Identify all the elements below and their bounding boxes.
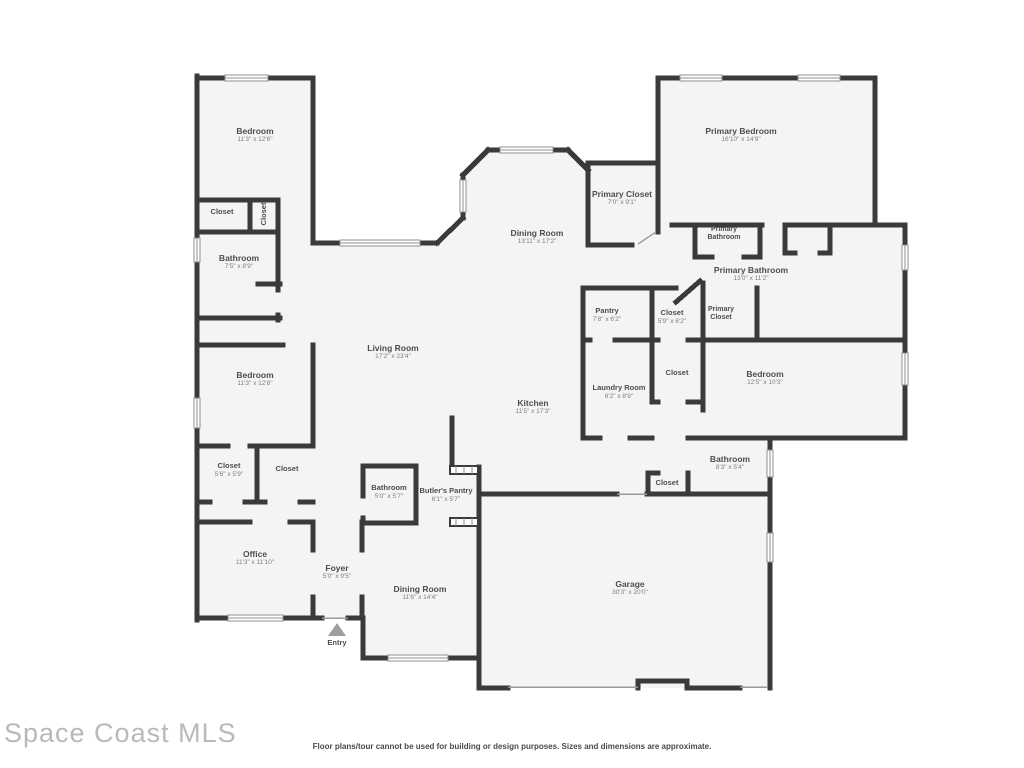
room-dims: 6'1" x 5'7"	[419, 496, 472, 504]
room-label-laundry: Laundry Room 6'2" x 8'9"	[593, 383, 646, 401]
room-dims: 13'0" x 11'2"	[714, 275, 788, 283]
floor-plan-page: Bedroom 11'3" x 12'6" Closet Closet Bath…	[0, 0, 1024, 768]
room-label-office: Office 11'3" x 11'10"	[236, 549, 274, 567]
room-name: Closet	[656, 478, 679, 488]
room-label-living-room: Living Room 17'2" x 23'4"	[367, 343, 418, 361]
room-name: Pantry	[593, 306, 621, 316]
room-label-butlers-pantry: Butler's Pantry 6'1" x 5'7"	[419, 486, 472, 504]
room-name: Closet	[666, 368, 689, 378]
room-label-primary-closet-small: Primary Closet	[698, 306, 744, 322]
room-name: Primary Bathroom	[701, 226, 747, 242]
room-label-bedroom-right: Bedroom 12'5" x 10'3"	[746, 369, 783, 387]
room-dims: 11'3" x 12'8"	[236, 380, 273, 388]
room-name: Garage	[612, 579, 648, 589]
room-name: Closet	[211, 207, 234, 217]
room-name: Kitchen	[515, 398, 550, 408]
room-label-closet-1: Closet 5'6" x 5'9"	[215, 461, 243, 479]
room-dims: 5'6" x 5'9"	[215, 471, 243, 479]
room-name: Closet	[215, 461, 243, 471]
room-name: Bathroom	[371, 483, 406, 493]
room-name: Bathroom	[710, 454, 750, 464]
room-dims: 17'2" x 23'4"	[367, 353, 418, 361]
room-label-dining-room-bottom: Dining Room 11'6" x 14'4"	[394, 584, 447, 602]
room-label-closet-b: Closet	[259, 203, 269, 226]
room-label-closet-garage: Closet	[656, 478, 679, 488]
room-label-bathroom-right: Bathroom 8'3" x 5'4"	[710, 454, 750, 472]
room-dims: 7'8" x 6'2"	[593, 316, 621, 324]
room-name: Entry	[327, 638, 346, 647]
room-name: Bedroom	[746, 369, 783, 379]
entry-arrow-icon	[328, 623, 346, 636]
room-name: Primary Bathroom	[714, 265, 788, 275]
room-label-bathroom-top-left: Bathroom 7'5" x 8'9"	[219, 253, 259, 271]
room-name: Bedroom	[236, 370, 273, 380]
floor-fill	[197, 78, 905, 688]
room-label-primary-bathroom: Primary Bathroom 13'0" x 11'2"	[714, 265, 788, 283]
room-name: Primary Closet	[592, 189, 652, 199]
room-dims: 16'10" x 14'9"	[705, 136, 776, 144]
room-label-primary-bathroom-wc: Primary Bathroom	[701, 226, 747, 242]
room-label-pantry: Pantry 7'8" x 6'2"	[593, 306, 621, 324]
room-label-primary-bedroom: Primary Bedroom 16'10" x 14'9"	[705, 126, 776, 144]
room-dims: 11'3" x 12'6"	[236, 136, 273, 144]
room-name: Primary Closet	[698, 306, 744, 322]
room-dims: 11'5" x 17'3"	[515, 408, 550, 416]
room-dims: 12'5" x 10'3"	[746, 379, 783, 387]
room-name: Living Room	[367, 343, 418, 353]
room-dims: 7'0" x 9'1"	[592, 199, 652, 207]
room-label-closet-a: Closet	[211, 207, 234, 217]
room-dims: 8'3" x 5'4"	[710, 464, 750, 472]
room-name: Bathroom	[219, 253, 259, 263]
room-dims: 11'3" x 11'10"	[236, 559, 274, 567]
room-label-primary-closet-top: Primary Closet 7'0" x 9'1"	[592, 189, 652, 207]
room-dims: 5'9" x 6'2"	[658, 318, 686, 326]
room-name: Laundry Room	[593, 383, 646, 393]
room-name: Butler's Pantry	[419, 486, 472, 496]
room-name: Primary Bedroom	[705, 126, 776, 136]
room-name: Bedroom	[236, 126, 273, 136]
room-name: Closet	[259, 203, 269, 226]
room-dims: 6'2" x 8'9"	[593, 393, 646, 401]
room-label-closet-2: Closet	[276, 464, 299, 474]
room-dims: 5'0" x 9'5"	[323, 573, 351, 581]
room-label-entry: Entry	[327, 638, 346, 647]
room-label-bedroom-mid-left: Bedroom 11'3" x 12'8"	[236, 370, 273, 388]
room-label-dining-room-top: Dining Room 13'11" x 17'2"	[511, 228, 564, 246]
disclaimer-text: Floor plans/tour cannot be used for buil…	[0, 742, 1024, 751]
room-name: Office	[236, 549, 274, 559]
room-dims: 5'0" x 5'7"	[371, 493, 406, 501]
room-label-garage: Garage 30'3" x 20'0"	[612, 579, 648, 597]
room-dims: 13'11" x 17'2"	[511, 238, 564, 246]
room-name: Closet	[658, 308, 686, 318]
room-label-bedroom-top-left: Bedroom 11'3" x 12'6"	[236, 126, 273, 144]
room-label-foyer: Foyer 5'0" x 9'5"	[323, 563, 351, 581]
room-dims: 7'5" x 8'9"	[219, 263, 259, 271]
room-name: Dining Room	[394, 584, 447, 594]
room-label-bathroom-small: Bathroom 5'0" x 5'7"	[371, 483, 406, 501]
room-name: Dining Room	[511, 228, 564, 238]
room-name: Foyer	[323, 563, 351, 573]
room-dims: 11'6" x 14'4"	[394, 594, 447, 602]
room-dims: 30'3" x 20'0"	[612, 589, 648, 597]
room-label-kitchen: Kitchen 11'5" x 17'3"	[515, 398, 550, 416]
room-name: Closet	[276, 464, 299, 474]
room-label-closet-hall: Closet	[666, 368, 689, 378]
floor-plan-drawing	[0, 0, 1024, 768]
room-label-closet-59: Closet 5'9" x 6'2"	[658, 308, 686, 326]
